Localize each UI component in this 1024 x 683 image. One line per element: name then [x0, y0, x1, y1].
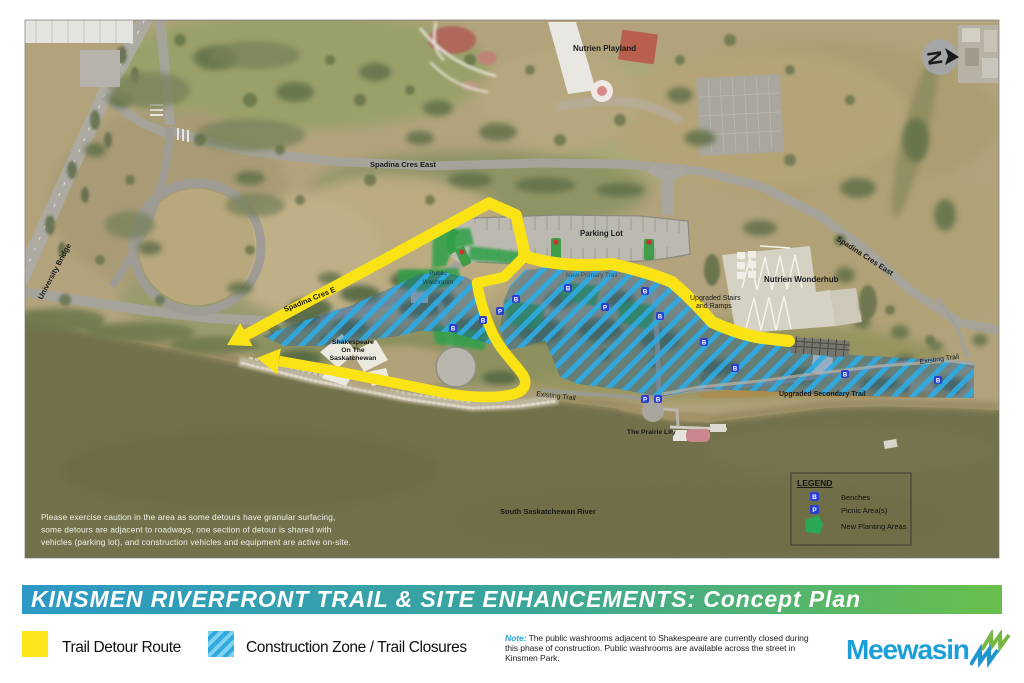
svg-text:vehicles (parking lot), and co: vehicles (parking lot), and construction…: [41, 537, 351, 547]
svg-text:New Primary Trail: New Primary Trail: [566, 272, 618, 279]
svg-text:Shakespeare: Shakespeare: [332, 339, 374, 346]
svg-text:Parking Lot: Parking Lot: [580, 229, 623, 238]
svg-text:P: P: [603, 306, 607, 312]
svg-text:N: N: [922, 49, 946, 66]
svg-text:B: B: [566, 287, 571, 293]
svg-text:Spadina Cres East: Spadina Cres East: [370, 160, 436, 169]
svg-text:Saskatchewan: Saskatchewan: [330, 355, 377, 362]
svg-text:On The: On The: [341, 347, 365, 354]
svg-text:Please exercise caution in the: Please exercise caution in the area as s…: [41, 512, 335, 522]
svg-text:LEGEND: LEGEND: [797, 478, 832, 488]
svg-text:B: B: [514, 298, 519, 304]
svg-text:Public: Public: [429, 270, 447, 277]
svg-text:Picnic Area(s): Picnic Area(s): [841, 506, 888, 515]
svg-text:Washroom: Washroom: [423, 279, 454, 286]
svg-text:B: B: [843, 373, 848, 379]
svg-text:P: P: [812, 507, 817, 514]
svg-text:B: B: [658, 315, 663, 321]
svg-text:New Planting Areas: New Planting Areas: [841, 522, 907, 531]
svg-text:B: B: [451, 327, 456, 333]
svg-text:South Saskatchewan River: South Saskatchewan River: [500, 507, 596, 516]
svg-text:Upgraded Stairs: Upgraded Stairs: [690, 295, 741, 302]
svg-text:B: B: [936, 379, 941, 385]
svg-text:P: P: [643, 398, 647, 404]
svg-text:Upgraded Secondary Trail: Upgraded Secondary Trail: [779, 391, 866, 398]
svg-text:B: B: [733, 367, 738, 373]
svg-text:B: B: [812, 494, 817, 501]
svg-text:B: B: [643, 290, 648, 296]
svg-text:Nutrien Playland: Nutrien Playland: [573, 44, 636, 53]
svg-text:some detours are adjacent to r: some detours are adjacent to roadways, o…: [41, 525, 332, 535]
svg-text:The Prairie Lily: The Prairie Lily: [627, 429, 676, 436]
svg-text:B: B: [656, 398, 661, 404]
svg-text:B: B: [481, 319, 486, 325]
svg-text:P: P: [498, 310, 502, 316]
svg-text:and Ramps: and Ramps: [696, 303, 732, 310]
svg-text:Benches: Benches: [841, 493, 870, 502]
svg-text:Nutrien Wonderhub: Nutrien Wonderhub: [764, 275, 839, 284]
svg-text:B: B: [702, 341, 707, 347]
